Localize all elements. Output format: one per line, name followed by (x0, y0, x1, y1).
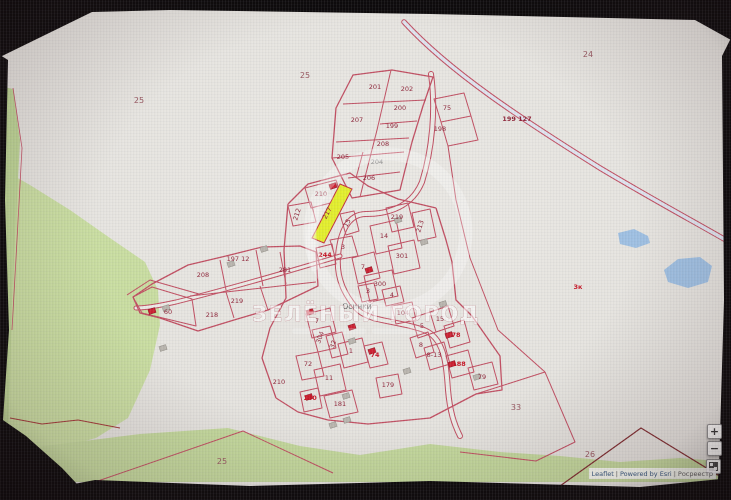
attribution-separator: | (616, 470, 618, 478)
parcel-label: 198 (434, 125, 446, 133)
parcel-label: 3 (366, 287, 370, 295)
parcel-label: 206 (363, 174, 375, 182)
parcel-label: 199 (386, 122, 398, 130)
parcel-label: 79 (478, 373, 486, 381)
parcel-label: 78 (451, 331, 461, 339)
parcel-label: 200 (394, 104, 406, 112)
parcel-label: 7 (361, 263, 365, 271)
map-viewer-window: 252524332625199 1273к2012022002071997519… (0, 0, 731, 500)
zoom-in-button[interactable]: + (707, 424, 722, 439)
parcel-label: 180 (303, 394, 317, 402)
parcel-label: 3 (341, 243, 345, 251)
leaflet-link[interactable]: Leaflet (592, 470, 614, 478)
parcel-label: 24 (583, 50, 593, 59)
parcel-label: 201 (369, 83, 381, 91)
watermark-subline (292, 328, 424, 334)
parcel-label: 8 (419, 341, 423, 349)
parcel-label: 219 (231, 297, 243, 305)
parcel-label: 210 (273, 378, 285, 386)
parcel-label: 14 (380, 232, 388, 240)
parcel-label: 179 (382, 381, 394, 389)
parcel-label: 25 (134, 96, 144, 105)
parcel-label: 26 (585, 450, 595, 459)
parcel-label: 72 (304, 360, 312, 368)
zoom-out-button[interactable]: − (707, 441, 722, 456)
map-canvas[interactable]: 252524332625199 1273к2012022002071997519… (0, 0, 731, 500)
watermark-text: ЗЕЛЁНЫЙ ГОРОД (252, 301, 480, 326)
parcel-label: 300 (374, 280, 386, 288)
powered-by-link[interactable]: Powered by Esri (620, 470, 672, 478)
parcel-label: 207 (351, 116, 363, 124)
zoom-out-label: − (710, 443, 719, 454)
parcel-label: 1 (349, 347, 353, 355)
parcel-label: 60 (164, 308, 172, 316)
parcel-label: 75 (443, 104, 451, 112)
parcel-label: 25 (300, 71, 310, 80)
parcel-label: 4 (390, 291, 394, 299)
parcel-label: 8-13 (427, 351, 442, 359)
registry-link[interactable]: Росреестр (678, 470, 713, 478)
parcel-label: 74 (370, 351, 380, 359)
attribution-separator: | (674, 470, 676, 478)
parcel-label: 208 (377, 140, 389, 148)
parcel-label: 25 (217, 457, 227, 466)
parcel-label: 199 127 (502, 115, 531, 123)
parcel-label: 33 (511, 403, 521, 412)
zoom-in-label: + (710, 426, 719, 437)
parcel-label: 202 (401, 85, 413, 93)
parcel-label: 218 (206, 311, 218, 319)
parcel-label: 181 (334, 400, 346, 408)
parcel-label: 208 (197, 271, 209, 279)
parcel-label: 3к (574, 283, 584, 291)
parcel-label: 301 (396, 252, 408, 260)
parcel-label: 11 (325, 374, 333, 382)
parcel-label: 219 (391, 213, 403, 221)
attribution-bar: Leaflet | Powered by Esri | Росреестр (589, 468, 716, 479)
parcel-label: 188 (452, 360, 466, 368)
parcel-label: 197 12 (227, 255, 250, 263)
parcel-label: 281 (279, 266, 291, 274)
